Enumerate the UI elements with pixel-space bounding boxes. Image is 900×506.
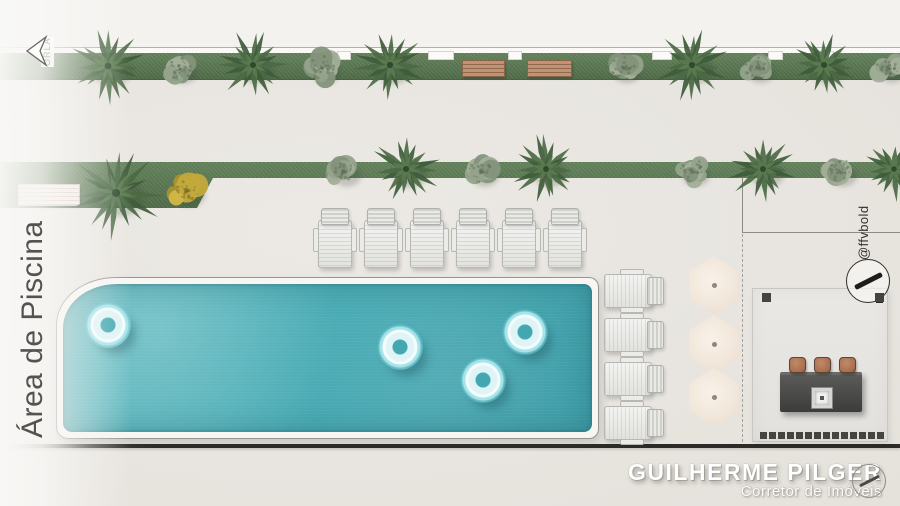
brand-role: Corretor de Imóveis xyxy=(628,484,882,500)
pool xyxy=(56,277,599,439)
parasol xyxy=(687,368,741,426)
promenade-notch xyxy=(816,51,834,60)
sun-lounger xyxy=(502,208,536,270)
beachside-area xyxy=(0,0,900,47)
bbq-edge-block xyxy=(823,432,830,439)
pool-water xyxy=(63,284,592,432)
site-plan: ORLA Área de Piscina @ffvbold GUILHERME … xyxy=(0,0,900,506)
branding: GUILHERME PILGER Corretor de Imóveis xyxy=(628,460,882,500)
bbq-edge-block xyxy=(778,432,785,439)
brand-name: GUILHERME PILGER xyxy=(628,460,882,484)
bbq-stool xyxy=(814,357,831,373)
bbq-edge-block xyxy=(814,432,821,439)
bench-wood xyxy=(527,60,572,77)
sun-lounger xyxy=(602,406,664,440)
bbq-corner-post xyxy=(875,293,884,302)
pool-float-ring xyxy=(460,357,506,403)
boundary-line-horizontal xyxy=(742,232,900,233)
bbq-edge-block xyxy=(805,432,812,439)
sun-lounger xyxy=(602,318,664,352)
promenade-notch xyxy=(508,51,522,60)
bbq-corner-post xyxy=(762,293,771,302)
bbq-edge-block xyxy=(841,432,848,439)
sun-lounger xyxy=(456,208,490,270)
promenade-notch xyxy=(428,51,454,60)
orla-arrow-icon xyxy=(24,34,58,75)
bbq-stool xyxy=(789,357,806,373)
area-label: Área de Piscina xyxy=(16,166,50,438)
sun-lounger xyxy=(602,362,664,396)
retaining-wall-line xyxy=(0,444,900,448)
pool-float-ring xyxy=(377,324,423,370)
pool-float-ring xyxy=(85,302,131,348)
parasol xyxy=(687,256,741,314)
sun-lounger xyxy=(364,208,398,270)
bbq-sink xyxy=(812,388,832,408)
bbq-edge-block xyxy=(760,432,767,439)
parasol xyxy=(687,315,741,373)
bbq-edge-block xyxy=(796,432,803,439)
bbq-edge-block xyxy=(868,432,875,439)
sun-lounger xyxy=(318,208,352,270)
bbq-edge-block xyxy=(832,432,839,439)
bbq-edge-block xyxy=(877,432,884,439)
promenade-notch xyxy=(652,51,672,60)
grass-band-middle xyxy=(0,162,900,208)
sun-lounger xyxy=(410,208,444,270)
bbq-edge-block xyxy=(859,432,866,439)
bbq-stool xyxy=(839,357,856,373)
sun-lounger xyxy=(602,274,664,308)
slash-circle-icon xyxy=(852,464,886,498)
bbq-edge-block xyxy=(850,432,857,439)
sun-lounger xyxy=(548,208,582,270)
bbq-edge-block xyxy=(787,432,794,439)
boundary-line-vertical xyxy=(742,178,743,233)
pool-float-ring xyxy=(502,309,548,355)
slash-mark xyxy=(853,272,882,290)
bbq-edge-block xyxy=(769,432,776,439)
slash-mark xyxy=(859,475,880,488)
boundary-line-dashed xyxy=(742,234,743,442)
promenade-notch xyxy=(768,51,783,60)
bench-wood xyxy=(462,60,505,77)
promenade-notch xyxy=(337,51,351,60)
watermark-handle: @ffvbold xyxy=(856,200,871,260)
